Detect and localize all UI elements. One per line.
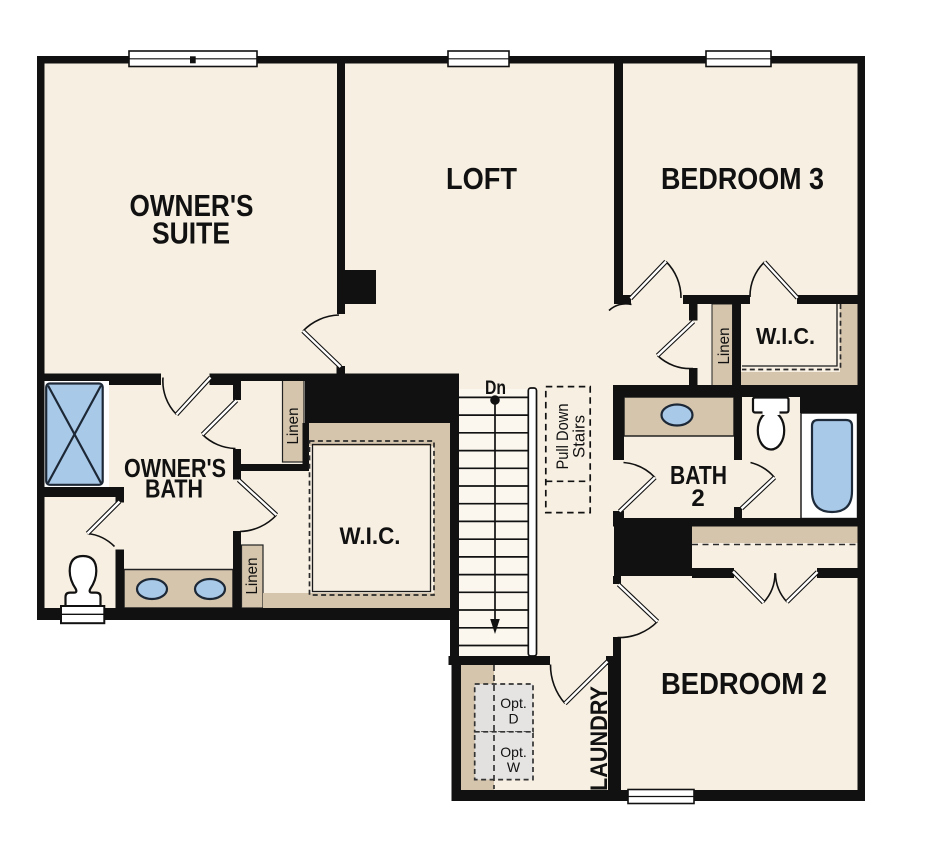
svg-text:Opt.: Opt. bbox=[500, 744, 526, 760]
svg-text:BEDROOM 2: BEDROOM 2 bbox=[661, 666, 827, 701]
svg-text:SUITE: SUITE bbox=[152, 216, 230, 251]
svg-text:BATH: BATH bbox=[145, 474, 203, 504]
svg-text:BEDROOM 3: BEDROOM 3 bbox=[661, 161, 824, 196]
svg-text:2: 2 bbox=[691, 485, 704, 512]
svg-text:Dn: Dn bbox=[485, 378, 506, 399]
svg-text:W.I.C.: W.I.C. bbox=[340, 523, 401, 550]
svg-text:Linen: Linen bbox=[716, 328, 733, 365]
svg-text:Linen: Linen bbox=[285, 408, 302, 445]
svg-text:Linen: Linen bbox=[244, 558, 261, 595]
svg-text:Pull Down: Pull Down bbox=[554, 404, 572, 470]
svg-text:W.I.C.: W.I.C. bbox=[756, 323, 815, 349]
svg-text:Stairs: Stairs bbox=[571, 415, 589, 458]
svg-text:LAUNDRY: LAUNDRY bbox=[586, 686, 613, 791]
svg-text:LOFT: LOFT bbox=[446, 161, 517, 196]
svg-text:D: D bbox=[508, 711, 518, 727]
svg-text:W: W bbox=[507, 759, 521, 775]
svg-text:Opt.: Opt. bbox=[500, 695, 526, 711]
